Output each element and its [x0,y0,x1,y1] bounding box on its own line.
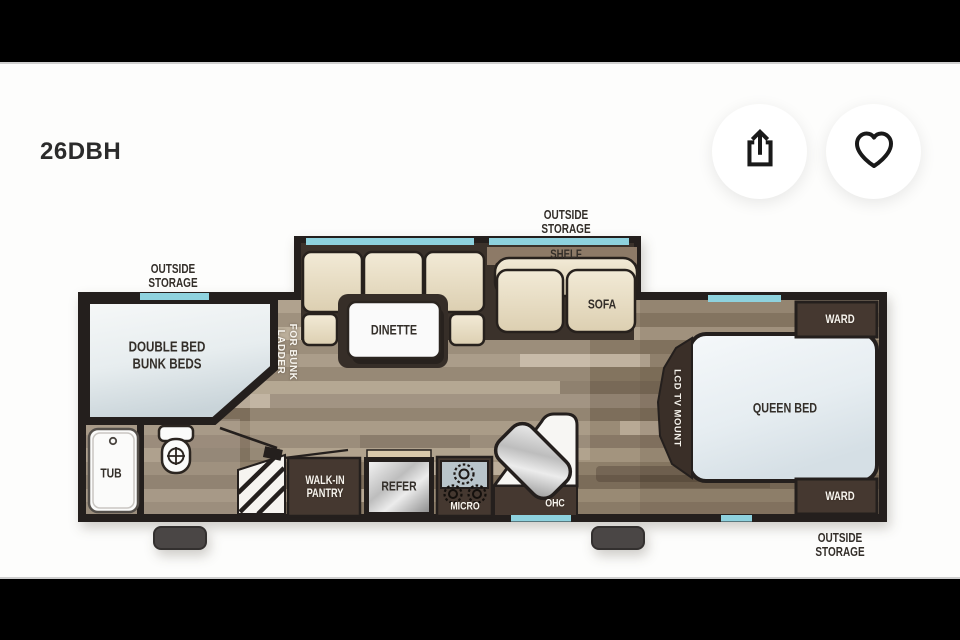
dinette-seat [450,314,484,345]
label-double-bed-bunk: DOUBLE BED BUNK BEDS [129,339,206,372]
label-outside-storage-left: OUTSIDE STORAGE [148,262,197,291]
label-walk-in-pantry: WALK-IN PANTRY [305,475,344,501]
label-dinette: DINETTE [371,322,417,337]
letterbox-top [0,0,960,64]
label-refer: REFER [381,480,416,495]
label-wardrobe-bottom: WARD [825,490,854,504]
window [489,238,629,245]
label-outside-storage-right: OUTSIDE STORAGE [815,531,864,560]
label-tub: TUB [100,467,121,482]
label-shelf: SHELF [550,248,581,262]
label-lcd-tv-mount: LCD TV MOUNT [672,369,683,447]
label-outside-storage-top: OUTSIDE STORAGE [541,208,590,237]
label-micro: MICRO [450,501,479,514]
label-ladder-for-bunk: LADDER FOR BUNK [274,324,298,381]
floorplan-image[interactable]: OUTSIDE STORAGE OUTSIDE STORAGE OUTSIDE … [0,0,960,640]
trailer-floorplan [78,236,887,549]
label-sofa: SOFA [588,298,616,313]
label-ohc: OHC [545,498,565,511]
dinette-seat [303,314,337,345]
label-wardrobe-top: WARD [825,313,854,327]
window [511,515,571,522]
window [721,515,752,522]
window [140,293,209,300]
window [306,238,474,245]
window [708,295,781,302]
entry-step [154,527,206,549]
label-queen-bed: QUEEN BED [753,400,817,415]
screenshot-root: 26DBH [0,0,960,640]
sofa-seat [497,270,563,332]
entry-step [592,527,644,549]
letterbox-bottom [0,577,960,640]
